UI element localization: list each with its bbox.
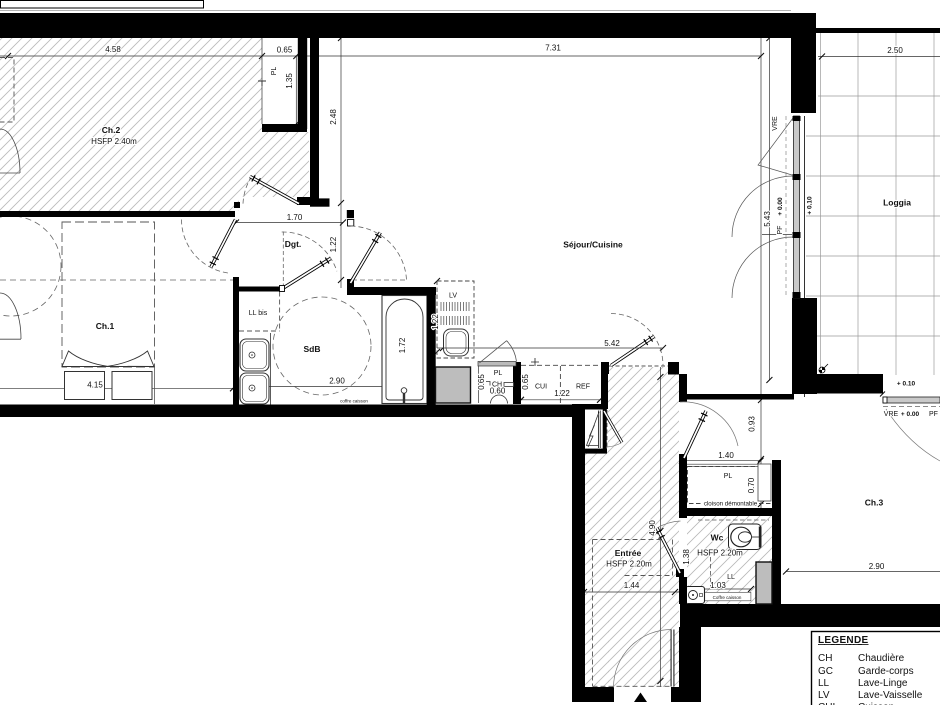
svg-text:2.48: 2.48	[329, 109, 338, 125]
svg-text:2.90: 2.90	[869, 562, 885, 571]
svg-text:1.40: 1.40	[718, 451, 734, 460]
svg-text:VRE: VRE	[884, 411, 899, 418]
svg-text:Garde-corps: Garde-corps	[858, 666, 914, 677]
svg-text:+ 0.10: + 0.10	[897, 381, 916, 388]
svg-text:1.22: 1.22	[431, 314, 440, 330]
svg-text:PF: PF	[777, 226, 784, 235]
svg-text:CUI: CUI	[535, 384, 547, 391]
svg-text:0.93: 0.93	[748, 416, 757, 432]
svg-text:Ch.3: Ch.3	[865, 498, 884, 508]
svg-text:0.70: 0.70	[747, 477, 756, 493]
svg-text:7.31: 7.31	[545, 44, 561, 53]
svg-text:1.22: 1.22	[329, 236, 338, 252]
svg-text:cloison démontable: cloison démontable	[704, 501, 758, 508]
svg-text:+ 0.10: + 0.10	[807, 196, 814, 215]
svg-text:VRE: VRE	[772, 116, 779, 131]
svg-text:LV: LV	[818, 690, 830, 701]
svg-text:HSFP 2.40m: HSFP 2.40m	[91, 137, 137, 146]
svg-text:+ 0.00: + 0.00	[901, 411, 920, 418]
svg-text:4.90: 4.90	[648, 520, 657, 536]
svg-text:1.22: 1.22	[554, 389, 570, 398]
svg-text:CH: CH	[818, 653, 832, 664]
svg-text:1.70: 1.70	[287, 213, 303, 222]
svg-text:LL bis: LL bis	[249, 310, 268, 317]
svg-text:PL: PL	[494, 370, 503, 377]
svg-text:SdB: SdB	[304, 344, 321, 354]
svg-text:Wc: Wc	[711, 533, 724, 543]
svg-text:0.65: 0.65	[277, 46, 293, 55]
svg-text:1.35: 1.35	[285, 73, 294, 89]
svg-text:Ch.1: Ch.1	[96, 321, 115, 331]
svg-text:LL: LL	[727, 574, 735, 581]
svg-text:Séjour/Cuisine: Séjour/Cuisine	[563, 240, 623, 250]
svg-text:2.50: 2.50	[887, 46, 903, 55]
svg-text:4.15: 4.15	[87, 381, 103, 390]
svg-text:coffre caisson: coffre caisson	[340, 399, 368, 404]
svg-text:0.65: 0.65	[521, 374, 530, 390]
svg-text:LL: LL	[818, 678, 830, 689]
svg-text:LEGENDE: LEGENDE	[818, 635, 868, 646]
svg-text:0.60: 0.60	[490, 387, 506, 396]
svg-text:GC: GC	[818, 666, 833, 677]
svg-text:HSFP 2.20m: HSFP 2.20m	[697, 549, 743, 558]
svg-text:4.58: 4.58	[105, 45, 121, 54]
svg-text:5.42: 5.42	[604, 339, 620, 348]
svg-text:Lave-Vaisselle: Lave-Vaisselle	[858, 690, 923, 701]
svg-text:Coffre caisson: Coffre caisson	[713, 595, 742, 600]
svg-text:Lave-Linge: Lave-Linge	[858, 678, 908, 689]
svg-text:Ch.2: Ch.2	[102, 125, 121, 135]
svg-text:PL: PL	[271, 67, 278, 76]
svg-text:Entrée: Entrée	[615, 548, 642, 558]
svg-text:0.65: 0.65	[477, 374, 486, 390]
svg-text:HSFP 2.20m: HSFP 2.20m	[606, 560, 652, 569]
svg-text:Chaudière: Chaudière	[858, 653, 905, 664]
svg-text:5.43: 5.43	[763, 211, 772, 227]
svg-text:1.03: 1.03	[710, 581, 726, 590]
svg-text:LV: LV	[449, 293, 457, 300]
svg-text:+ 0.00: + 0.00	[777, 197, 784, 216]
svg-text:Dgt.: Dgt.	[285, 239, 302, 249]
svg-text:REF: REF	[576, 384, 590, 391]
svg-text:PL: PL	[724, 473, 733, 480]
svg-text:1.44: 1.44	[624, 581, 640, 590]
svg-text:Loggia: Loggia	[883, 198, 911, 208]
svg-text:2.90: 2.90	[329, 377, 345, 386]
svg-text:1.38: 1.38	[682, 549, 691, 565]
svg-text:PF: PF	[929, 411, 938, 418]
svg-text:1.72: 1.72	[398, 337, 407, 353]
